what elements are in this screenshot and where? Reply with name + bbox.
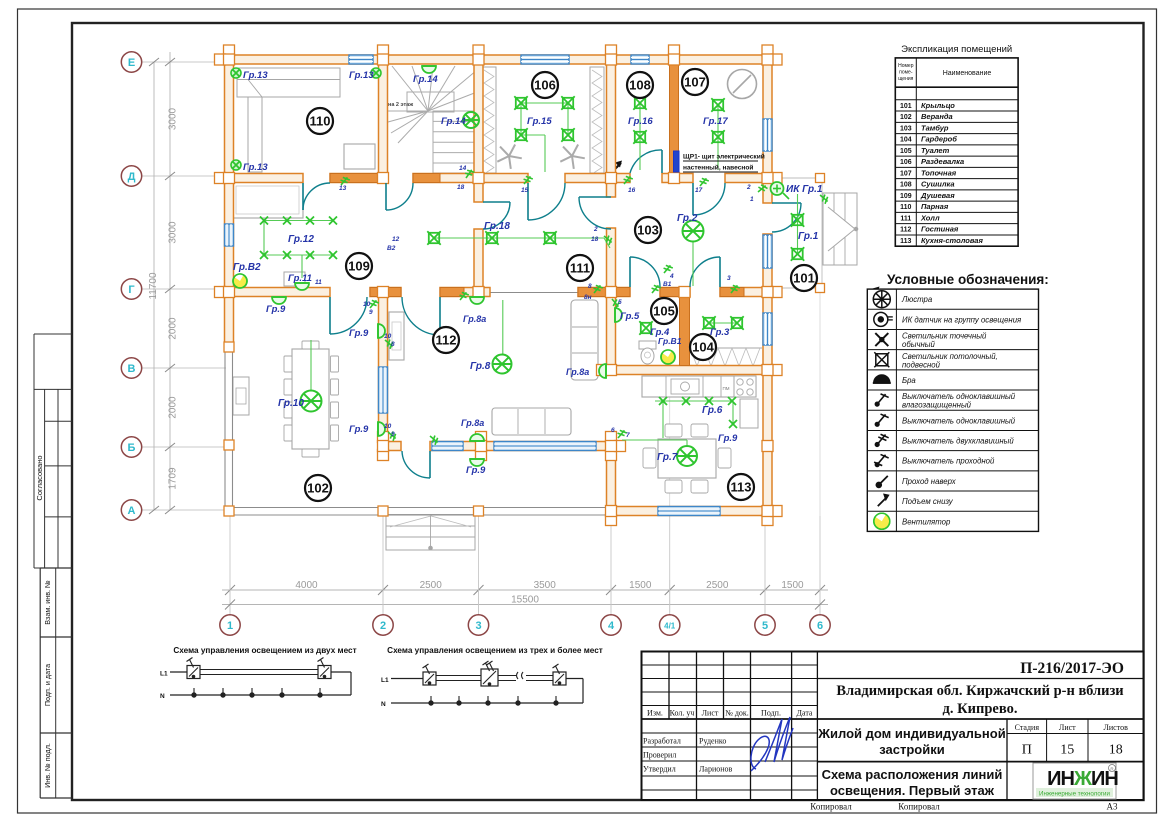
svg-text:Гр.1: Гр.1 — [798, 231, 819, 242]
svg-text:Гр.6: Гр.6 — [702, 405, 723, 416]
svg-text:Раздевалка: Раздевалка — [921, 157, 964, 166]
svg-text:Гардероб: Гардероб — [921, 135, 957, 144]
svg-text:106: 106 — [534, 78, 556, 93]
svg-text:3: 3 — [727, 275, 731, 282]
svg-text:103: 103 — [900, 125, 912, 132]
svg-text:Условные обозначения:: Условные обозначения: — [887, 272, 1049, 287]
svg-text:Душевая: Душевая — [920, 191, 955, 200]
svg-text:108: 108 — [900, 182, 912, 189]
svg-text:112: 112 — [900, 227, 911, 234]
svg-text:N: N — [160, 693, 165, 700]
svg-text:№ док.: № док. — [725, 709, 749, 718]
svg-text:освещения. Первый этаж: освещения. Первый этаж — [830, 783, 995, 798]
svg-text:N: N — [381, 701, 386, 708]
svg-text:Руденко: Руденко — [699, 737, 726, 746]
svg-text:Инженерные технологии: Инженерные технологии — [1039, 791, 1110, 798]
svg-text:ИН: ИН — [1047, 768, 1074, 790]
svg-text:Холл: Холл — [920, 213, 940, 222]
svg-text:110: 110 — [900, 204, 911, 211]
svg-text:5: 5 — [762, 620, 768, 632]
svg-text:2000: 2000 — [168, 317, 179, 340]
svg-text:104: 104 — [692, 340, 714, 355]
svg-text:15500: 15500 — [511, 595, 539, 606]
svg-text:Номер: Номер — [898, 63, 914, 69]
svg-text:8: 8 — [391, 341, 395, 348]
svg-text:Гр.3: Гр.3 — [710, 327, 730, 338]
svg-text:Гр.10: Гр.10 — [278, 398, 304, 409]
svg-text:Копировал: Копировал — [898, 802, 940, 812]
svg-text:Согласовано: Согласовано — [35, 455, 44, 500]
svg-text:Выключатель двухклавишный: Выключатель двухклавишный — [902, 437, 1014, 446]
svg-text:Схема расположения линий: Схема расположения линий — [822, 767, 1003, 782]
svg-text:Гр.В2: Гр.В2 — [233, 262, 261, 273]
svg-text:Кухня-столовая: Кухня-столовая — [921, 236, 983, 245]
svg-text:Гр.В1: Гр.В1 — [658, 336, 682, 346]
svg-text:106: 106 — [900, 159, 912, 166]
svg-text:Гр.2: Гр.2 — [677, 213, 698, 224]
svg-text:Гр.13: Гр.13 — [349, 70, 374, 81]
svg-text:Выключатель проходной: Выключатель проходной — [902, 457, 995, 466]
svg-text:П-216/2017-ЭО: П-216/2017-ЭО — [1020, 660, 1124, 677]
svg-text:Лист: Лист — [702, 709, 719, 718]
svg-text:109: 109 — [900, 193, 912, 200]
svg-text:Подъем снизу: Подъем снизу — [902, 497, 954, 506]
svg-text:111: 111 — [570, 261, 590, 276]
svg-text:Подп. и дата: Подп. и дата — [43, 664, 52, 706]
svg-text:щения: щения — [898, 76, 913, 82]
svg-text:10: 10 — [384, 423, 392, 430]
svg-text:2500: 2500 — [706, 580, 729, 591]
svg-text:Гр.7: Гр.7 — [657, 452, 678, 463]
svg-text:107: 107 — [684, 75, 706, 90]
svg-text:Жилой дом индивидуальной: Жилой дом индивидуальной — [817, 726, 1005, 741]
svg-text:3: 3 — [475, 620, 481, 632]
svg-text:102: 102 — [900, 114, 912, 121]
svg-text:3000: 3000 — [168, 107, 179, 130]
svg-text:Лист: Лист — [1059, 723, 1076, 732]
svg-text:Гр.14: Гр.14 — [413, 74, 438, 85]
svg-text:Экспликация помещений: Экспликация помещений — [901, 44, 1012, 55]
svg-text:А3: А3 — [1107, 802, 1118, 812]
svg-text:105: 105 — [653, 304, 675, 319]
svg-text:18: 18 — [1109, 743, 1123, 758]
svg-text:1500: 1500 — [629, 580, 652, 591]
svg-text:ИК Гр.1: ИК Гр.1 — [786, 184, 823, 195]
svg-text:7: 7 — [626, 432, 630, 439]
svg-text:108: 108 — [629, 78, 651, 93]
svg-text:Сушилка: Сушилка — [921, 180, 955, 189]
svg-text:Гостиная: Гостиная — [921, 225, 959, 234]
svg-text:Гр.9: Гр.9 — [349, 424, 369, 435]
svg-text:1709: 1709 — [168, 467, 179, 490]
svg-text:113: 113 — [731, 480, 752, 495]
svg-text:Гр.8а: Гр.8а — [461, 418, 484, 428]
svg-text:Г: Г — [128, 284, 135, 296]
svg-text:Выключатель одноклавишный: Выключатель одноклавишный — [902, 416, 1016, 425]
svg-text:поме-: поме- — [899, 70, 913, 76]
svg-text:Стадия: Стадия — [1015, 723, 1040, 732]
svg-text:2: 2 — [593, 226, 598, 233]
svg-text:Топочная: Топочная — [921, 168, 957, 177]
svg-text:L1: L1 — [381, 677, 389, 684]
svg-text:4: 4 — [608, 620, 615, 632]
svg-text:2: 2 — [380, 620, 386, 632]
svg-text:Гр.8: Гр.8 — [470, 361, 491, 372]
svg-text:д. Кипрево.: д. Кипрево. — [943, 701, 1018, 717]
svg-text:Гр.15: Гр.15 — [527, 116, 552, 127]
svg-text:влагозащищенный: влагозащищенный — [902, 401, 972, 410]
svg-text:1: 1 — [750, 196, 754, 203]
svg-text:5: 5 — [618, 299, 622, 306]
svg-text:1500: 1500 — [781, 580, 804, 591]
svg-text:Инв. № подл.: Инв. № подл. — [43, 743, 52, 788]
svg-text:102: 102 — [307, 481, 329, 496]
svg-text:Кол. уч: Кол. уч — [670, 709, 695, 718]
svg-text:Гр.8а: Гр.8а — [463, 314, 486, 324]
svg-text:2000: 2000 — [168, 396, 179, 419]
svg-text:Вентилятор: Вентилятор — [902, 517, 951, 526]
svg-text:ПМ: ПМ — [723, 386, 730, 391]
svg-text:Туалет: Туалет — [921, 146, 950, 155]
svg-text:103: 103 — [637, 223, 659, 238]
svg-text:Тамбур: Тамбур — [921, 123, 949, 132]
svg-text:4/1: 4/1 — [664, 622, 676, 631]
svg-text:4000: 4000 — [295, 580, 318, 591]
svg-text:застройки: застройки — [879, 742, 945, 757]
svg-text:Гр.12: Гр.12 — [288, 234, 314, 245]
svg-text:ЩР1- щит электрический: ЩР1- щит электрический — [683, 153, 765, 161]
svg-text:Схема управления освещением из: Схема управления освещением из трех и бо… — [387, 645, 603, 655]
svg-text:подвесной: подвесной — [902, 360, 941, 369]
svg-text:3000: 3000 — [168, 221, 179, 244]
svg-text:Ж: Ж — [1073, 768, 1093, 790]
svg-text:Гр.11: Гр.11 — [288, 273, 312, 284]
svg-text:Утвердил: Утвердил — [643, 765, 676, 774]
svg-text:на 2 этаж: на 2 этаж — [388, 102, 413, 108]
svg-text:10: 10 — [363, 301, 371, 308]
svg-text:109: 109 — [348, 259, 370, 274]
svg-text:Гр.14: Гр.14 — [441, 116, 466, 127]
svg-text:14: 14 — [459, 165, 467, 172]
svg-text:101: 101 — [900, 103, 912, 110]
svg-text:16: 16 — [628, 187, 636, 194]
svg-text:4: 4 — [669, 273, 674, 280]
svg-text:Копировал: Копировал — [810, 802, 852, 812]
svg-text:L1: L1 — [160, 671, 168, 678]
svg-text:В1: В1 — [663, 281, 672, 288]
svg-text:В2: В2 — [387, 245, 396, 252]
svg-text:А: А — [128, 505, 136, 517]
svg-text:Гр.5: Гр.5 — [620, 311, 640, 322]
svg-text:Гр.9: Гр.9 — [349, 328, 369, 339]
svg-text:Е: Е — [128, 57, 135, 69]
svg-text:3500: 3500 — [534, 580, 557, 591]
svg-text:17: 17 — [695, 187, 703, 194]
svg-text:Гр.17: Гр.17 — [703, 116, 728, 127]
svg-text:107: 107 — [900, 170, 912, 177]
svg-text:8н: 8н — [584, 294, 592, 301]
svg-text:Проверил: Проверил — [643, 751, 676, 760]
svg-text:настенный, навесной: настенный, навесной — [683, 164, 753, 172]
svg-text:9: 9 — [391, 431, 395, 438]
svg-text:Люстра: Люстра — [901, 295, 933, 304]
svg-text:Проход наверх: Проход наверх — [902, 477, 957, 486]
svg-text:Дата: Дата — [797, 709, 813, 718]
svg-text:В: В — [128, 363, 136, 375]
svg-text:2: 2 — [746, 184, 751, 191]
svg-text:104: 104 — [900, 137, 912, 144]
svg-text:П: П — [1022, 743, 1032, 758]
svg-text:Бра: Бра — [902, 376, 916, 385]
svg-text:обычный: обычный — [902, 340, 936, 349]
svg-text:15: 15 — [521, 187, 529, 194]
svg-text:Схема управления освещением из: Схема управления освещением из двух мест — [173, 646, 356, 655]
svg-text:Изм.: Изм. — [647, 709, 663, 718]
svg-text:11700: 11700 — [148, 272, 159, 300]
svg-text:Разработал: Разработал — [643, 737, 681, 746]
svg-text:9: 9 — [369, 309, 373, 316]
svg-text:6: 6 — [817, 620, 823, 632]
svg-text:Листов: Листов — [1103, 723, 1128, 732]
svg-text:Д: Д — [128, 171, 136, 183]
svg-text:Гр.13: Гр.13 — [243, 70, 268, 81]
svg-text:Б: Б — [128, 442, 136, 454]
svg-text:Гр.9: Гр.9 — [266, 304, 286, 315]
svg-text:12: 12 — [392, 236, 400, 243]
svg-text:10: 10 — [384, 333, 392, 340]
svg-text:113: 113 — [900, 238, 911, 245]
svg-text:Гр.8а: Гр.8а — [566, 367, 589, 377]
svg-text:Гр.16: Гр.16 — [628, 116, 653, 127]
svg-text:101: 101 — [793, 271, 815, 286]
svg-text:Гр.9: Гр.9 — [718, 433, 738, 444]
svg-text:Наименование: Наименование — [943, 70, 992, 77]
svg-text:105: 105 — [900, 148, 912, 155]
svg-text:11: 11 — [315, 279, 322, 286]
svg-text:Гр.13: Гр.13 — [243, 162, 268, 173]
svg-text:111: 111 — [900, 215, 911, 222]
svg-text:2500: 2500 — [420, 580, 443, 591]
svg-text:Крыльцо: Крыльцо — [921, 101, 955, 110]
svg-text:Гр.18: Гр.18 — [484, 221, 510, 232]
svg-text:18: 18 — [591, 236, 599, 243]
svg-text:6: 6 — [611, 427, 615, 434]
svg-text:Веранда: Веранда — [921, 112, 953, 121]
svg-text:Парная: Парная — [921, 202, 949, 211]
svg-text:13: 13 — [339, 185, 347, 192]
svg-text:Взам. инв. №: Взам. инв. № — [43, 580, 52, 625]
svg-text:Ларионов: Ларионов — [699, 765, 733, 774]
svg-text:110: 110 — [310, 114, 331, 129]
svg-text:ИК датчик на группу освещения: ИК датчик на группу освещения — [902, 315, 1022, 324]
svg-text:1: 1 — [227, 620, 233, 632]
svg-text:Гр.9: Гр.9 — [466, 465, 486, 476]
svg-text:Подп.: Подп. — [761, 709, 781, 718]
svg-text:18: 18 — [457, 184, 465, 191]
svg-text:8: 8 — [588, 283, 592, 290]
svg-text:Владимирская обл. Киржачский р: Владимирская обл. Киржачский р-н вблизи — [836, 683, 1123, 699]
svg-text:ИН: ИН — [1091, 768, 1118, 790]
svg-text:112: 112 — [436, 333, 457, 348]
svg-text:15: 15 — [1060, 743, 1074, 758]
